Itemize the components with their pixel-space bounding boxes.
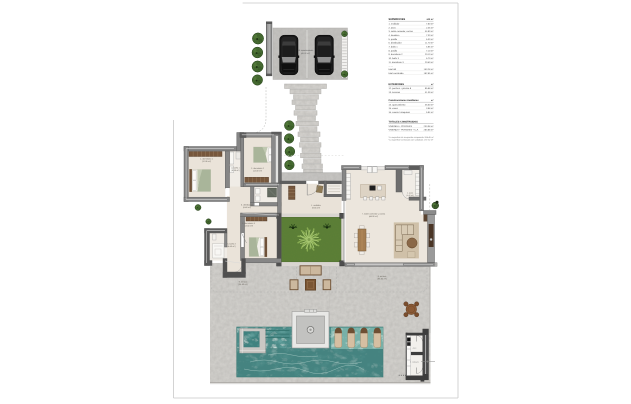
svg-text:9. terraza: 9. terraza — [239, 281, 248, 284]
svg-text:(9.85 m²): (9.85 m²) — [312, 207, 320, 210]
svg-text:7.80 m²: 7.80 m² — [426, 22, 434, 25]
svg-text:EXTERIORES: EXTERIORES — [389, 83, 405, 86]
svg-text:— —: — — — [389, 66, 394, 68]
svg-text:(45.00 m²): (45.00 m²) — [301, 52, 311, 55]
svg-text:1. recibidor: 1. recibidor — [311, 204, 321, 207]
svg-text:(13.08 m²): (13.08 m²) — [253, 170, 263, 173]
svg-text:*La superficie construida con: *La superficie construida con voladizos:… — [389, 139, 434, 142]
svg-text:2.45 m²: 2.45 m² — [426, 26, 434, 29]
svg-text:*La superficie de ocupación co: *La superficie de ocupación computada: 9… — [389, 136, 434, 139]
svg-text:(13.50 m²): (13.50 m²) — [244, 225, 254, 228]
svg-text:(98.80 m²): (98.80 m²) — [377, 278, 387, 281]
svg-text:m²: m² — [431, 83, 434, 86]
svg-text:(4.95 m²): (4.95 m²) — [231, 169, 239, 172]
svg-text:útil m²: útil m² — [427, 18, 434, 21]
svg-text:4. baño 1: 4. baño 1 — [231, 167, 240, 170]
svg-text:2. aseo: 2. aseo — [389, 26, 397, 29]
svg-text:10. aparcamiento: 10. aparcamiento — [298, 49, 314, 52]
svg-text:SUPERFICIES: SUPERFICIES — [389, 18, 406, 21]
svg-text:Construcciones Auxiliares: Construcciones Auxiliares — [389, 99, 420, 102]
svg-text:6. distribuidor: 6. distribuidor — [241, 204, 253, 207]
svg-text:aseo: aseo — [413, 348, 417, 350]
svg-text:2. aseo: 2. aseo — [407, 192, 413, 195]
svg-text:2. dormitorio 2: 2. dormitorio 2 — [251, 167, 265, 170]
svg-text:(6.40 m²): (6.40 m²) — [243, 206, 251, 209]
svg-text:1. recibidor: 1. recibidor — [389, 22, 400, 25]
svg-text:5. baño 3: 5. baño 3 — [227, 243, 236, 246]
svg-text:9. terraza: 9. terraza — [378, 275, 387, 278]
svg-text:8. vestuario: 8. vestuario — [410, 361, 419, 364]
svg-text:m²: m² — [431, 99, 434, 102]
svg-text:(44.90 m²): (44.90 m²) — [369, 215, 379, 218]
svg-text:(12.95 m²): (12.95 m²) — [202, 160, 212, 163]
svg-text:7. salón comedor y cocina: 7. salón comedor y cocina — [362, 213, 386, 216]
svg-text:1. dormitorio 1: 1. dormitorio 1 — [200, 158, 214, 161]
svg-text:(36.50 m²): (36.50 m²) — [238, 283, 248, 286]
svg-text:(4.60 m²): (4.60 m²) — [227, 245, 235, 248]
svg-text:(2.45 m²): (2.45 m²) — [406, 194, 414, 197]
svg-text:3. dormitorio 3: 3. dormitorio 3 — [242, 222, 256, 225]
svg-text:TOTALES CONSTRUIDOS: TOTALES CONSTRUIDOS — [389, 121, 419, 124]
